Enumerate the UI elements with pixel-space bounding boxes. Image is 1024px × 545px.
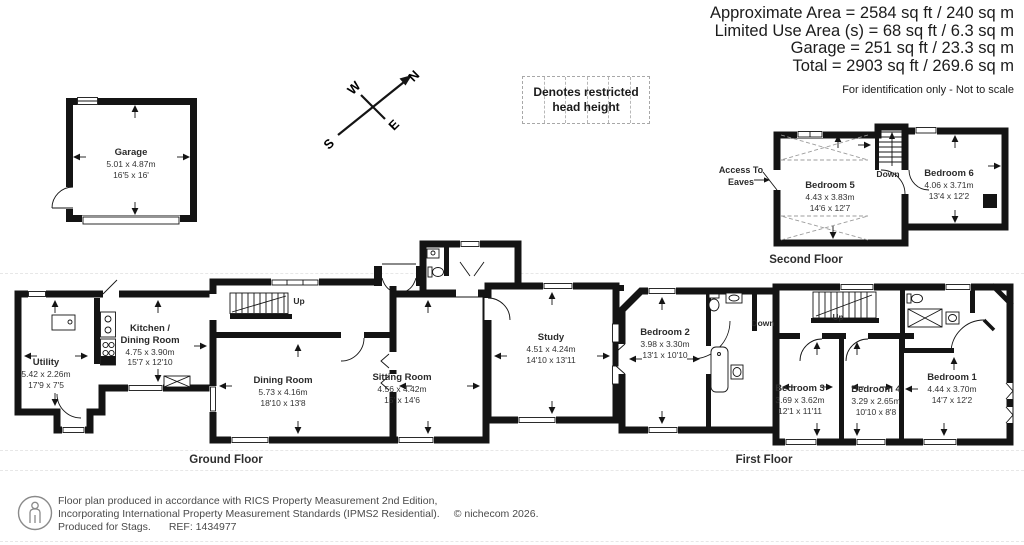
stairs-up-label-ground: Up <box>293 296 304 306</box>
footer-line-2: Incorporating International Property Mea… <box>58 508 539 521</box>
room-name: Bedroom 2 <box>640 327 690 339</box>
room-label-bedroom-5: Bedroom 5 4.43 x 3.83m 14'6 x 12'7 <box>805 180 855 213</box>
room-label-bedroom-1: Bedroom 1 4.44 x 3.70m 14'7 x 12'2 <box>927 372 977 405</box>
reference-number: REF: 1434977 <box>169 521 237 533</box>
room-name: Kitchen / Dining Room <box>116 323 184 347</box>
approximate-area-line: Approximate Area = 2584 sq ft / 240 sq m <box>710 5 1014 23</box>
first-floor-caption: First Floor <box>736 454 793 466</box>
room-label-sitting-room: Sitting Room 4.56 x 4.42m 15' x 14'6 <box>372 372 431 405</box>
room-label-bedroom-4: Bedroom 4 3.29 x 2.65m 10'10 x 8'8 <box>851 384 901 417</box>
room-label-bedroom-3: Bedroom 3 3.69 x 3.62m 12'1 x 11'11 <box>775 383 825 416</box>
total-area-line: Total = 2903 sq ft / 269.6 sq m <box>710 58 1014 76</box>
access-to-eaves-label: Access To Eaves <box>715 164 767 188</box>
compass-west-label: W <box>344 78 364 98</box>
compass-north-label: N <box>405 67 422 84</box>
area-summary: Approximate Area = 2584 sq ft / 240 sq m… <box>710 5 1014 100</box>
room-label-kitchen-dining: Kitchen / Dining Room 4.75 x 3.90m 15'7 … <box>116 323 184 368</box>
identification-note: For identification only - Not to scale <box>710 82 1014 100</box>
room-name: Sitting Room <box>372 372 431 384</box>
garage-door <box>52 187 75 209</box>
person-icon <box>16 494 56 534</box>
footer-line-1: Floor plan produced in accordance with R… <box>58 495 539 508</box>
compass-rose: N W E S <box>300 55 435 160</box>
room-label-study: Study 4.51 x 4.24m 14'10 x 13'11 <box>526 332 575 365</box>
room-name: Study <box>526 332 575 344</box>
room-name: Bedroom 4 <box>851 384 901 396</box>
stairs-down-label-second: Down <box>876 169 899 179</box>
room-name: Utility <box>21 357 70 369</box>
compass-south-label: S <box>320 135 337 152</box>
room-name: Bedroom 1 <box>927 372 977 384</box>
restricted-height-legend: Denotes restricted head height <box>522 76 650 124</box>
fold-line <box>0 541 1024 542</box>
stairs-up-label-first: Up <box>833 313 844 322</box>
room-label-bedroom-2: Bedroom 2 3.98 x 3.30m 13'1 x 10'10 <box>640 327 690 360</box>
compass-east-label: E <box>385 116 402 133</box>
room-name: Garage <box>106 147 155 159</box>
room-name: Bedroom 6 <box>924 168 974 180</box>
room-name: Dining Room <box>253 375 312 387</box>
first-floor-stairs <box>813 292 876 318</box>
second-floor-caption: Second Floor <box>769 254 842 266</box>
copyright: © nichecom 2026. <box>454 508 539 520</box>
room-label-garage: Garage 5.01 x 4.87m 16'5 x 16' <box>106 147 155 180</box>
room-name: Bedroom 3 <box>775 383 825 395</box>
footer-disclaimer: Floor plan produced in accordance with R… <box>58 495 539 534</box>
stairs-down-label-first: Down <box>751 318 774 328</box>
second-floor-plan <box>718 118 1020 260</box>
ground-floor-caption: Ground Floor <box>189 454 262 466</box>
limited-use-area-line: Limited Use Area (s) = 68 sq ft / 6.3 sq… <box>710 23 1014 41</box>
fold-line <box>0 470 1024 471</box>
garage-area-line: Garage = 251 sq ft / 23.3 sq m <box>710 40 1014 58</box>
room-label-utility: Utility 5.42 x 2.26m 17'9 x 7'5 <box>21 357 70 390</box>
ground-floor-stairs <box>230 293 292 319</box>
room-label-dining-room: Dining Room 5.73 x 4.16m 18'10 x 13'8 <box>253 375 312 408</box>
legend-text: Denotes restricted head height <box>523 85 649 114</box>
room-label-bedroom-6: Bedroom 6 4.06 x 3.71m 13'4 x 12'2 <box>924 168 974 201</box>
floorplan-page: Approximate Area = 2584 sq ft / 240 sq m… <box>0 0 1024 545</box>
first-floor-plan <box>614 279 1020 447</box>
footer-line-3: Produced for Stags.REF: 1434977 <box>58 521 539 534</box>
room-name: Bedroom 5 <box>805 180 855 192</box>
